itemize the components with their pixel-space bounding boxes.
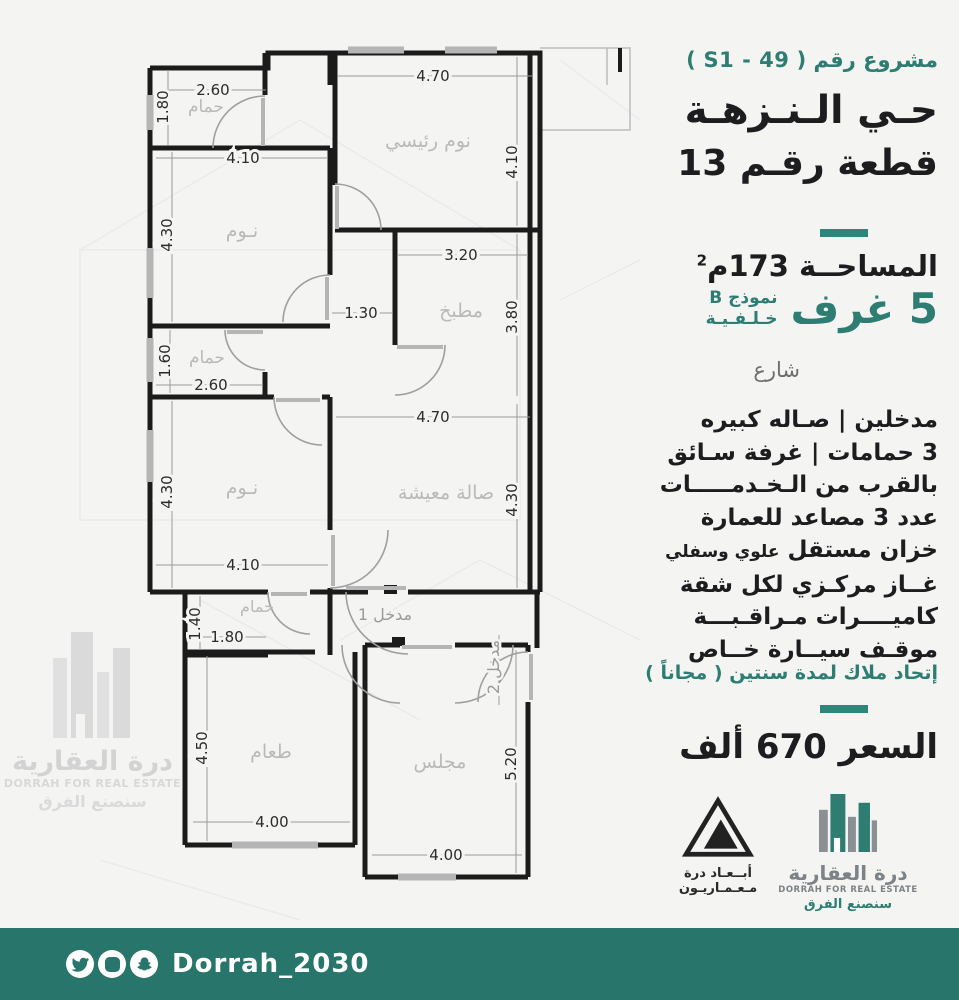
feature-central-gas: غــاز مركـزي لكل شقة xyxy=(660,569,938,602)
svg-text:4.10: 4.10 xyxy=(226,149,259,167)
dorrah-title-ar: درة العقارية xyxy=(773,861,923,885)
room-label-dining: طعام xyxy=(250,741,292,763)
floorplan-svg: 2.60 4.70 4.10 3.20 1.30 2.60 4.70 4.10 … xyxy=(0,0,645,928)
dorrah-buildings-icon xyxy=(819,792,877,854)
svg-text:3.80: 3.80 xyxy=(503,300,521,333)
street-label: شارع xyxy=(753,358,800,382)
model-name: نموذج B xyxy=(706,288,778,309)
snapchat-icon[interactable] xyxy=(130,950,158,978)
room-label-bed2: نـوم xyxy=(226,477,258,499)
hoa-note: إتحاد ملاك لمدة سنتين ( مجاناً ) xyxy=(645,662,938,684)
dorrah-title-en: DORRAH FOR REAL ESTATE xyxy=(773,885,923,895)
svg-text:4.30: 4.30 xyxy=(503,483,521,516)
svg-text:4.30: 4.30 xyxy=(158,218,176,251)
svg-text:4.10: 4.10 xyxy=(503,145,521,178)
svg-text:4.10: 4.10 xyxy=(226,556,259,574)
svg-text:2.60: 2.60 xyxy=(194,376,227,394)
entrance2-frame xyxy=(392,637,405,646)
features-list: مدخلين | صـاله كبيره 3 حمامات | غرفة سـا… xyxy=(660,404,938,666)
architect-logo: أبــعـاد درة مـعـمـاريـون xyxy=(663,796,773,896)
room-label-living: صالة معيشة xyxy=(398,482,494,504)
price-value: السعر 670 ألف xyxy=(679,727,938,767)
svg-text:4.30: 4.30 xyxy=(158,475,176,508)
divider-bar-top xyxy=(820,229,868,237)
feature-near-services: بالقرب من الـخـدمـــــات xyxy=(660,469,938,502)
room-label-kitchen: مطبخ xyxy=(439,300,483,322)
architect-triangle-icon xyxy=(682,796,754,858)
svg-text:1.80: 1.80 xyxy=(210,628,243,646)
svg-text:4.00: 4.00 xyxy=(429,846,462,864)
area-value: المساحــة 173م2 xyxy=(697,249,938,283)
room-label-bath1: حمام xyxy=(188,97,224,117)
svg-text:4.70: 4.70 xyxy=(416,67,449,85)
svg-text:4.70: 4.70 xyxy=(416,408,449,426)
room-label-bed1: نـوم xyxy=(226,220,258,242)
room-label-master: نوم رئيسي xyxy=(385,130,471,152)
architect-name-line2: مـعـمـاريـون xyxy=(663,881,773,896)
project-number-label: مشروع رقم ( S1 - 49 ) xyxy=(686,48,938,72)
footer-bar: Dorrah_2030 xyxy=(0,928,959,1000)
svg-text:1.80: 1.80 xyxy=(154,90,172,123)
room-label-bath3: حمام xyxy=(240,597,274,616)
architect-name-line1: أبــعـاد درة xyxy=(663,866,773,881)
feature-tank: خزان مستقل علوي وسفلي xyxy=(660,534,938,569)
svg-text:1.40: 1.40 xyxy=(186,607,204,640)
svg-text:1.30: 1.30 xyxy=(344,304,377,322)
room-label-bath2: حمام xyxy=(189,348,225,368)
svg-text:4.50: 4.50 xyxy=(193,731,211,764)
dorrah-slogan: سنصنع الفرق xyxy=(773,897,923,912)
svg-text:3.20: 3.20 xyxy=(444,246,477,264)
feature-baths-driver: 3 حمامات | غرفة سـائق xyxy=(660,437,938,470)
feature-entrances-hall: مدخلين | صـاله كبيره xyxy=(660,404,938,437)
feature-cameras: كاميــــرات مـراقـبـــة xyxy=(660,601,938,634)
rooms-count: 5 غرف xyxy=(791,288,938,330)
model-info: نموذج B خـلـفـيـة xyxy=(706,288,778,331)
feature-tank-main: خزان مستقل xyxy=(787,537,938,563)
rooms-summary: 5 غرف نموذج B خـلـفـيـة xyxy=(706,288,938,331)
feature-elevators: عدد 3 مصاعد للعمارة xyxy=(660,502,938,535)
entrance2-label: مدخل 2 xyxy=(484,640,503,694)
room-labels: حمام نوم رئيسي نـوم مطبخ حمام نـوم صالة … xyxy=(188,97,494,773)
dimension-lines xyxy=(156,57,532,873)
divider-bar-bottom xyxy=(820,705,868,713)
area-text: المساحــة 173م xyxy=(707,249,938,283)
instagram-icon[interactable] xyxy=(98,950,126,978)
district-title: حـي الـنـزهـة xyxy=(685,88,938,133)
model-sub: خـلـفـيـة xyxy=(706,309,778,330)
svg-text:4.00: 4.00 xyxy=(255,813,288,831)
entrance1-label: مدخل 1 xyxy=(358,605,412,624)
area-superscript: 2 xyxy=(697,251,707,269)
plot-number: قطعة رقـم 13 xyxy=(677,143,938,184)
room-label-majlis: مجلس xyxy=(414,751,467,773)
svg-text:1.60: 1.60 xyxy=(156,344,174,377)
social-handle: Dorrah_2030 xyxy=(172,949,370,979)
flyer-root: { "colors":{"accent":"#2e7d72","divider"… xyxy=(0,0,959,1000)
dorrah-logo: درة العقارية DORRAH FOR REAL ESTATE سنصن… xyxy=(773,792,923,912)
twitter-icon[interactable] xyxy=(66,950,94,978)
feature-tank-small: علوي وسفلي xyxy=(665,542,779,562)
svg-text:5.20: 5.20 xyxy=(502,747,520,780)
stairwell-outline xyxy=(540,48,630,130)
